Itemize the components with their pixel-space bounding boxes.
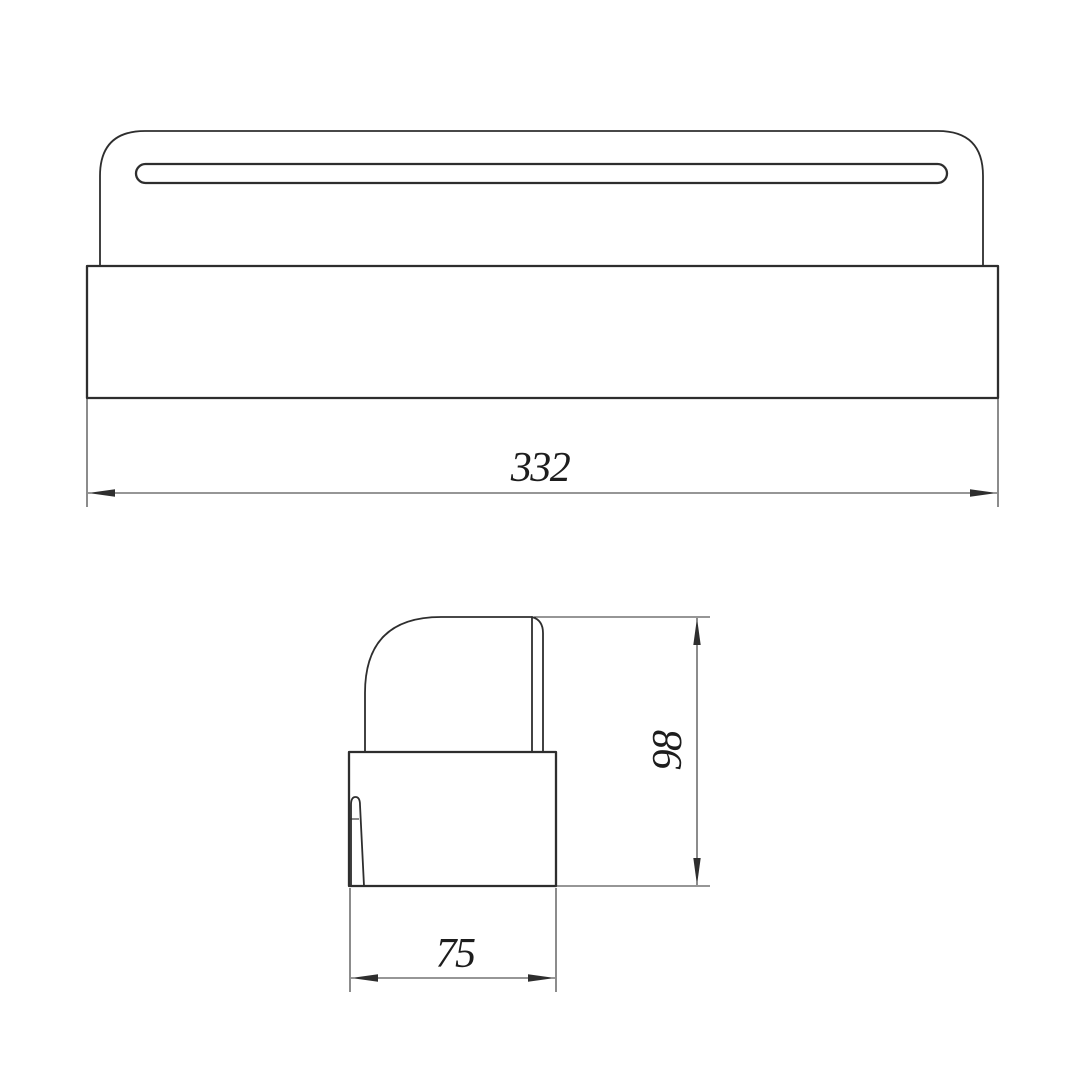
side-view: 98 75 bbox=[349, 617, 710, 992]
dimension-height: 98 bbox=[534, 617, 710, 886]
technical-drawing: 332 98 bbox=[0, 0, 1080, 1080]
arrowhead-right-icon bbox=[970, 489, 997, 496]
top-view-base-outline bbox=[87, 266, 998, 398]
arrowhead-up-icon bbox=[693, 618, 700, 645]
dimension-height-label: 98 bbox=[645, 730, 691, 771]
side-view-base-outline bbox=[349, 752, 556, 886]
top-view: 332 bbox=[87, 131, 998, 507]
dimension-length: 332 bbox=[87, 399, 998, 507]
arrowhead-left-icon bbox=[88, 489, 115, 496]
side-view-cap-outline bbox=[365, 617, 543, 752]
arrowhead-left-icon bbox=[351, 974, 378, 981]
dimension-depth: 75 bbox=[350, 888, 556, 992]
side-view-slot-profile bbox=[351, 797, 364, 886]
drawing-canvas: 332 98 bbox=[0, 0, 1080, 1080]
arrowhead-right-icon bbox=[528, 974, 555, 981]
dimension-length-label: 332 bbox=[510, 445, 571, 491]
top-view-slot bbox=[136, 164, 947, 183]
top-view-cap-outline bbox=[100, 131, 983, 266]
dimension-depth-label: 75 bbox=[436, 931, 476, 977]
arrowhead-down-icon bbox=[693, 858, 700, 885]
